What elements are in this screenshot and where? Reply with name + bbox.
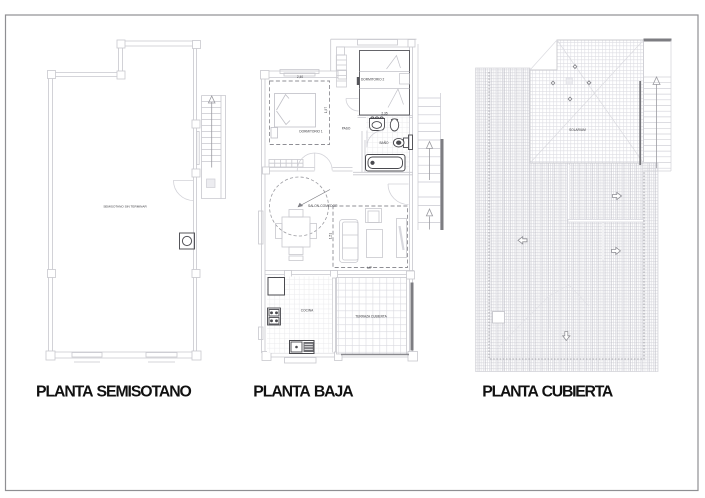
svg-text:TERRAZA CUBIERTA: TERRAZA CUBIERTA: [355, 314, 387, 318]
svg-text:PASO: PASO: [342, 126, 351, 130]
svg-text:1,97: 1,97: [324, 107, 328, 113]
svg-text:UP: UP: [367, 266, 373, 270]
svg-text:SEMISOTANO SIN TERMINAR: SEMISOTANO SIN TERMINAR: [103, 205, 147, 209]
svg-text:DORMITORIO 2: DORMITORIO 2: [361, 78, 385, 82]
svg-text:PLANTA BAJA: PLANTA BAJA: [253, 384, 353, 401]
svg-text:PLANTA SEMISOTANO: PLANTA SEMISOTANO: [36, 384, 192, 401]
svg-text:DORMITORIO 1: DORMITORIO 1: [299, 129, 323, 133]
svg-text:COCINA: COCINA: [301, 308, 314, 312]
svg-text:SOLARIUM: SOLARIUM: [569, 128, 586, 132]
svg-text:BAÑO: BAÑO: [379, 140, 389, 145]
svg-text:2,40: 2,40: [297, 75, 303, 79]
svg-text:PLANTA CUBIERTA: PLANTA CUBIERTA: [482, 384, 613, 401]
svg-text:2,35: 2,35: [381, 111, 387, 115]
svg-text:1,51: 1,51: [329, 233, 333, 239]
